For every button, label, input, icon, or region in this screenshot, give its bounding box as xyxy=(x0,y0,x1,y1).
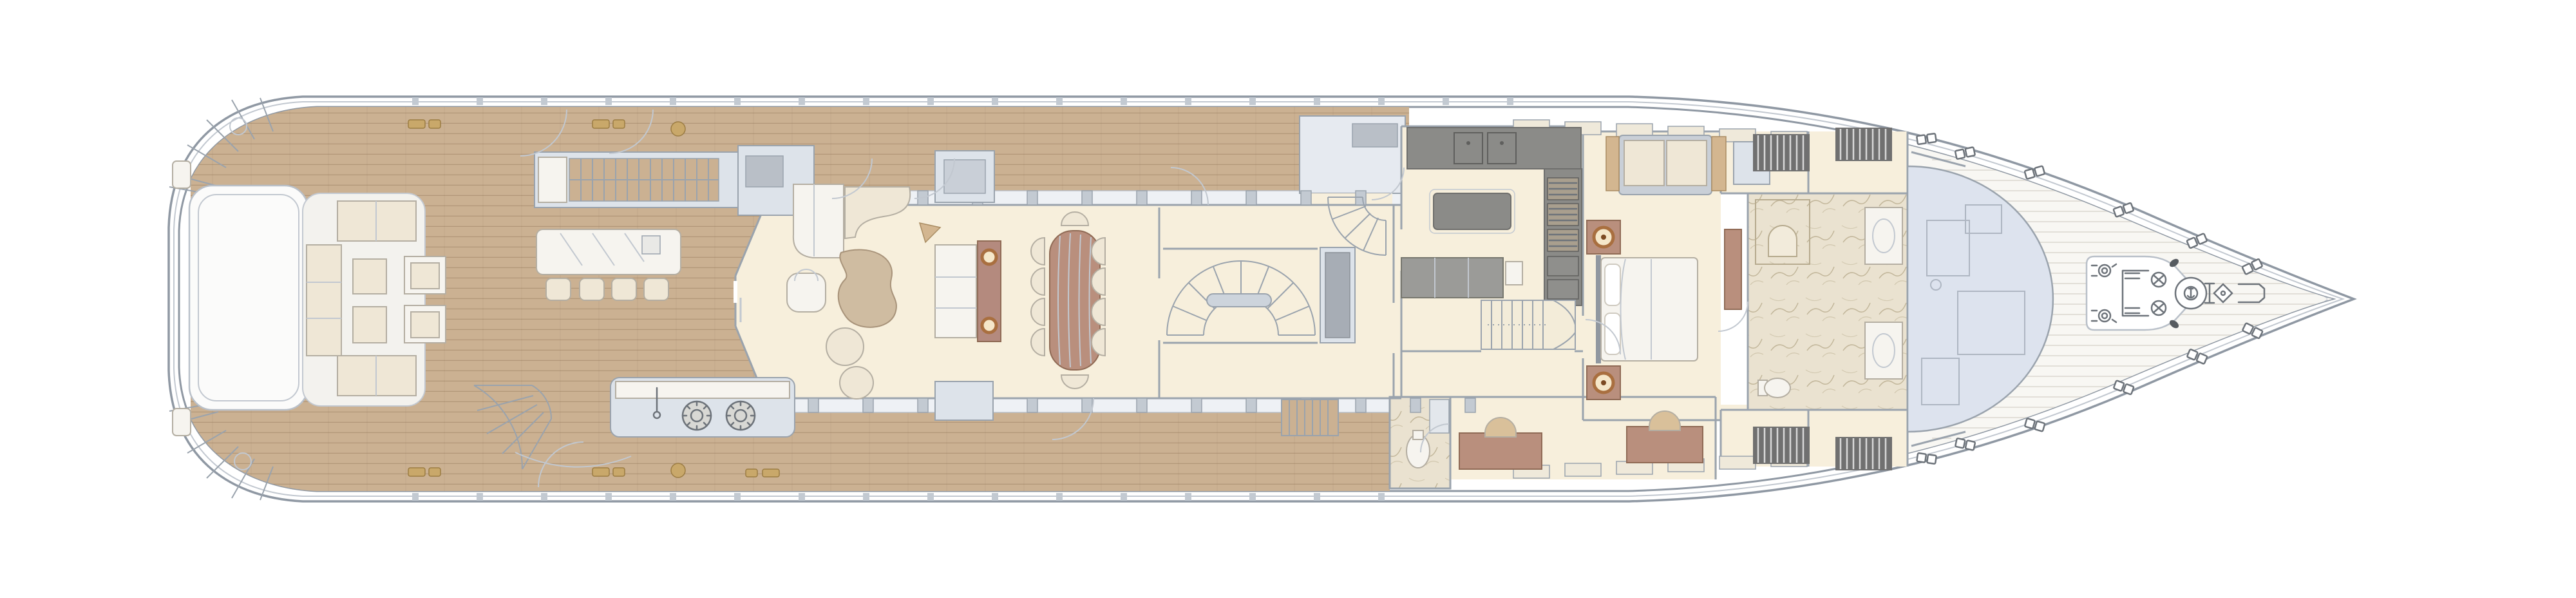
yacht-main-deck-plan xyxy=(0,0,2576,598)
salon-pouf-2 xyxy=(840,367,873,399)
shower-arch xyxy=(1768,226,1797,256)
wardrobe-slats-top-2 xyxy=(1835,128,1892,161)
elevator xyxy=(1320,247,1355,343)
salon-pouf-1 xyxy=(826,328,864,365)
salon-kidney-table xyxy=(838,249,896,327)
upper-deck-staircase xyxy=(535,152,738,207)
grill-burner-2 xyxy=(726,401,755,430)
pantry-counter xyxy=(1352,124,1397,147)
aft-pouf-2 xyxy=(353,307,386,343)
walkway-step-down xyxy=(1282,400,1338,436)
galley-storage-baskets xyxy=(1548,178,1578,299)
crew-stair-floor xyxy=(1302,193,1392,247)
aft-armchair-1 xyxy=(404,256,446,294)
pillow-2 xyxy=(1605,313,1620,354)
bench-lamp-2 xyxy=(982,318,996,333)
bar-stool-3 xyxy=(612,278,636,300)
bar-stool-2 xyxy=(580,278,604,300)
galley-island xyxy=(1434,193,1511,229)
wardrobe-slats-top xyxy=(1753,134,1810,171)
outdoor-galley-grill xyxy=(611,378,795,437)
wardrobe-slats-bottom xyxy=(1753,427,1810,464)
salon-bench-sofa xyxy=(935,241,1001,342)
anchor-windlass xyxy=(2175,278,2206,309)
banquette-table xyxy=(1506,262,1522,285)
stair-landing xyxy=(538,157,567,202)
bar-stool-4 xyxy=(644,278,668,300)
day-head-sink xyxy=(1430,400,1449,433)
galley-top-counter xyxy=(1407,128,1581,169)
nook-desk xyxy=(1459,433,1542,469)
nightstand-2 xyxy=(1587,366,1620,400)
salon-chaise xyxy=(793,184,844,258)
bench-lamp-1 xyxy=(982,250,996,264)
grill-burner-1 xyxy=(683,401,711,430)
salon-lounge-chair xyxy=(787,273,826,312)
bath-toilet xyxy=(1758,378,1790,398)
aft-armchair-2 xyxy=(404,305,446,343)
master-access-stair xyxy=(1481,300,1575,349)
bar-stool-1 xyxy=(546,278,571,300)
wardrobe-slats-bottom-2 xyxy=(1835,437,1892,470)
stern-fitting-bottom xyxy=(173,409,191,436)
deck-plan-canvas xyxy=(0,0,2576,598)
bar-sink xyxy=(642,236,660,254)
stern-hatch-platform xyxy=(189,186,308,410)
nightstand-1 xyxy=(1587,220,1620,254)
aft-pouf-1 xyxy=(353,259,386,294)
stair-handrail xyxy=(1207,294,1271,307)
stern-fitting-top xyxy=(173,161,191,188)
salon-door-vestibule xyxy=(935,381,993,420)
master-console xyxy=(1725,229,1741,309)
master-bed xyxy=(1596,255,1698,363)
pillow-1 xyxy=(1605,264,1620,305)
master-sofa xyxy=(1606,135,1726,195)
